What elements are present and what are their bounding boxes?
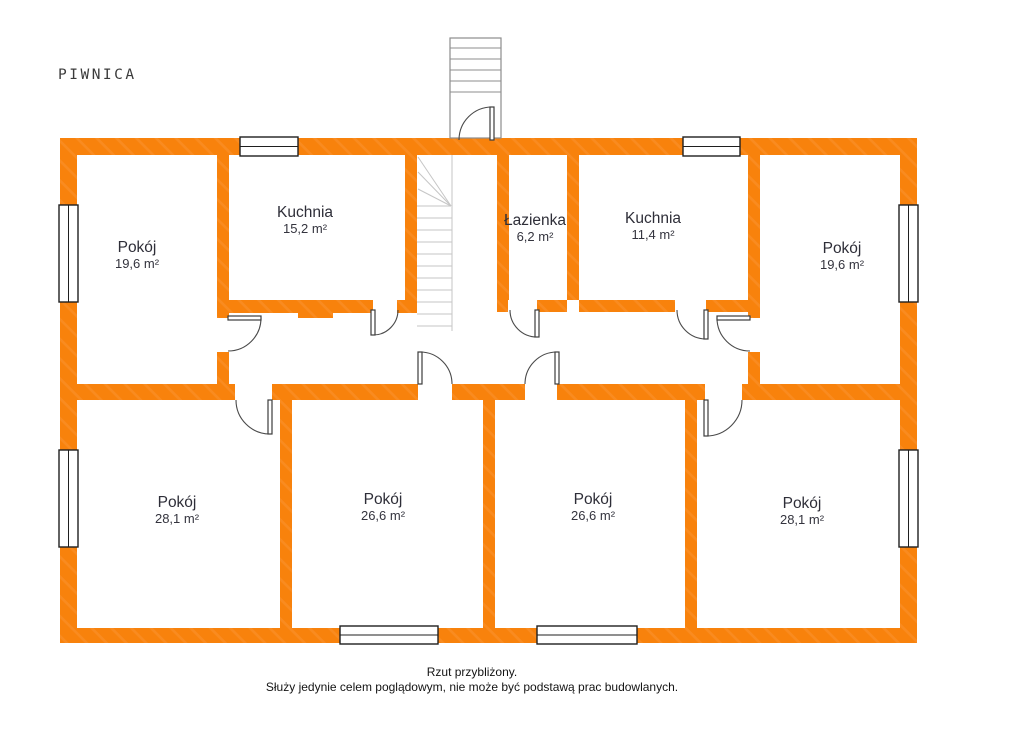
wall-segment bbox=[483, 400, 495, 628]
room-label-lazienka: Łazienka 6,2 m² bbox=[504, 212, 566, 244]
disclaimer-line-2: Służy jedynie celem poglądowym, nie może… bbox=[266, 680, 678, 695]
door-leaf bbox=[228, 316, 261, 320]
door-swing-arc bbox=[420, 352, 452, 384]
room-label-kuchnia-right: Kuchnia 11,4 m² bbox=[625, 210, 681, 242]
disclaimer: Rzut przybliżony. Służy jedynie celem po… bbox=[266, 665, 678, 695]
room-name: Pokój bbox=[780, 495, 824, 512]
wall-segment bbox=[567, 155, 579, 300]
wall-segment bbox=[537, 300, 567, 312]
room-name: Łazienka bbox=[504, 212, 566, 229]
stair-tread bbox=[418, 157, 451, 206]
room-area: 11,4 m² bbox=[625, 227, 681, 242]
wall-segment bbox=[217, 352, 229, 385]
disclaimer-line-1: Rzut przybliżony. bbox=[266, 665, 678, 680]
wall-segment bbox=[748, 155, 760, 318]
room-label-kuchnia-left: Kuchnia 15,2 m² bbox=[277, 204, 333, 236]
room-label-pokoj-bottom-mid-left: Pokój 26,6 m² bbox=[361, 491, 405, 523]
wall-segment bbox=[748, 352, 760, 385]
wall-segment bbox=[579, 300, 675, 312]
stair-tread bbox=[418, 172, 451, 206]
door-swing-arc bbox=[510, 310, 537, 337]
room-name: Pokój bbox=[155, 494, 199, 511]
wall-segment bbox=[685, 400, 697, 628]
stairs-layer bbox=[417, 38, 501, 331]
door-leaf bbox=[704, 400, 708, 436]
wall-segment bbox=[557, 384, 705, 400]
room-name: Pokój bbox=[361, 491, 405, 508]
door-leaf bbox=[268, 400, 272, 434]
wall-segment bbox=[60, 138, 917, 155]
wall-segment bbox=[280, 400, 292, 628]
room-label-pokoj-bottom-mid-right: Pokój 26,6 m² bbox=[571, 491, 615, 523]
wall-segment bbox=[298, 313, 333, 318]
door-swing-arc bbox=[525, 352, 557, 384]
room-area: 6,2 m² bbox=[504, 229, 566, 244]
room-area: 28,1 m² bbox=[780, 512, 824, 527]
door-leaf bbox=[717, 316, 750, 320]
wall-segment bbox=[217, 155, 229, 318]
wall-segment bbox=[60, 628, 917, 643]
room-area: 15,2 m² bbox=[277, 221, 333, 236]
door-swing-arc bbox=[706, 400, 742, 436]
door-leaf bbox=[418, 352, 422, 384]
wall-segment bbox=[60, 384, 235, 400]
plan-title: PIWNICA bbox=[58, 67, 137, 83]
room-name: Pokój bbox=[571, 491, 615, 508]
room-name: Pokój bbox=[115, 239, 159, 256]
room-label-pokoj-bottom-right: Pokój 28,1 m² bbox=[780, 495, 824, 527]
floor-plan-drawing bbox=[0, 0, 1024, 730]
room-area: 28,1 m² bbox=[155, 511, 199, 526]
wall-segment bbox=[452, 384, 525, 400]
door-leaf bbox=[371, 310, 375, 335]
door-swing-arc bbox=[677, 310, 706, 339]
wall-segment bbox=[217, 300, 373, 313]
door-leaf bbox=[704, 310, 708, 339]
room-area: 19,6 m² bbox=[820, 257, 864, 272]
room-name: Kuchnia bbox=[625, 210, 681, 227]
door-swing-arc bbox=[373, 310, 398, 335]
wall-segment bbox=[405, 155, 417, 313]
room-label-pokoj-top-right: Pokój 19,6 m² bbox=[820, 240, 864, 272]
room-name: Pokój bbox=[820, 240, 864, 257]
door-swing-arc bbox=[236, 400, 270, 434]
room-label-pokoj-top-left: Pokój 19,6 m² bbox=[115, 239, 159, 271]
floor-plan-page: PIWNICA Pokój 19,6 m² Kuchnia 15,2 m² Ła… bbox=[0, 0, 1024, 730]
walls-layer bbox=[60, 138, 917, 643]
room-label-pokoj-bottom-left: Pokój 28,1 m² bbox=[155, 494, 199, 526]
wall-segment bbox=[272, 384, 418, 400]
room-area: 19,6 m² bbox=[115, 256, 159, 271]
door-swing-arc bbox=[228, 318, 261, 351]
door-leaf bbox=[555, 352, 559, 384]
door-leaf bbox=[490, 107, 494, 140]
room-name: Kuchnia bbox=[277, 204, 333, 221]
room-area: 26,6 m² bbox=[361, 508, 405, 523]
wall-segment bbox=[497, 300, 508, 312]
door-swing-arc bbox=[717, 318, 750, 351]
wall-segment bbox=[742, 384, 917, 400]
room-area: 26,6 m² bbox=[571, 508, 615, 523]
door-leaf bbox=[535, 310, 539, 337]
stair-tread bbox=[418, 189, 451, 206]
